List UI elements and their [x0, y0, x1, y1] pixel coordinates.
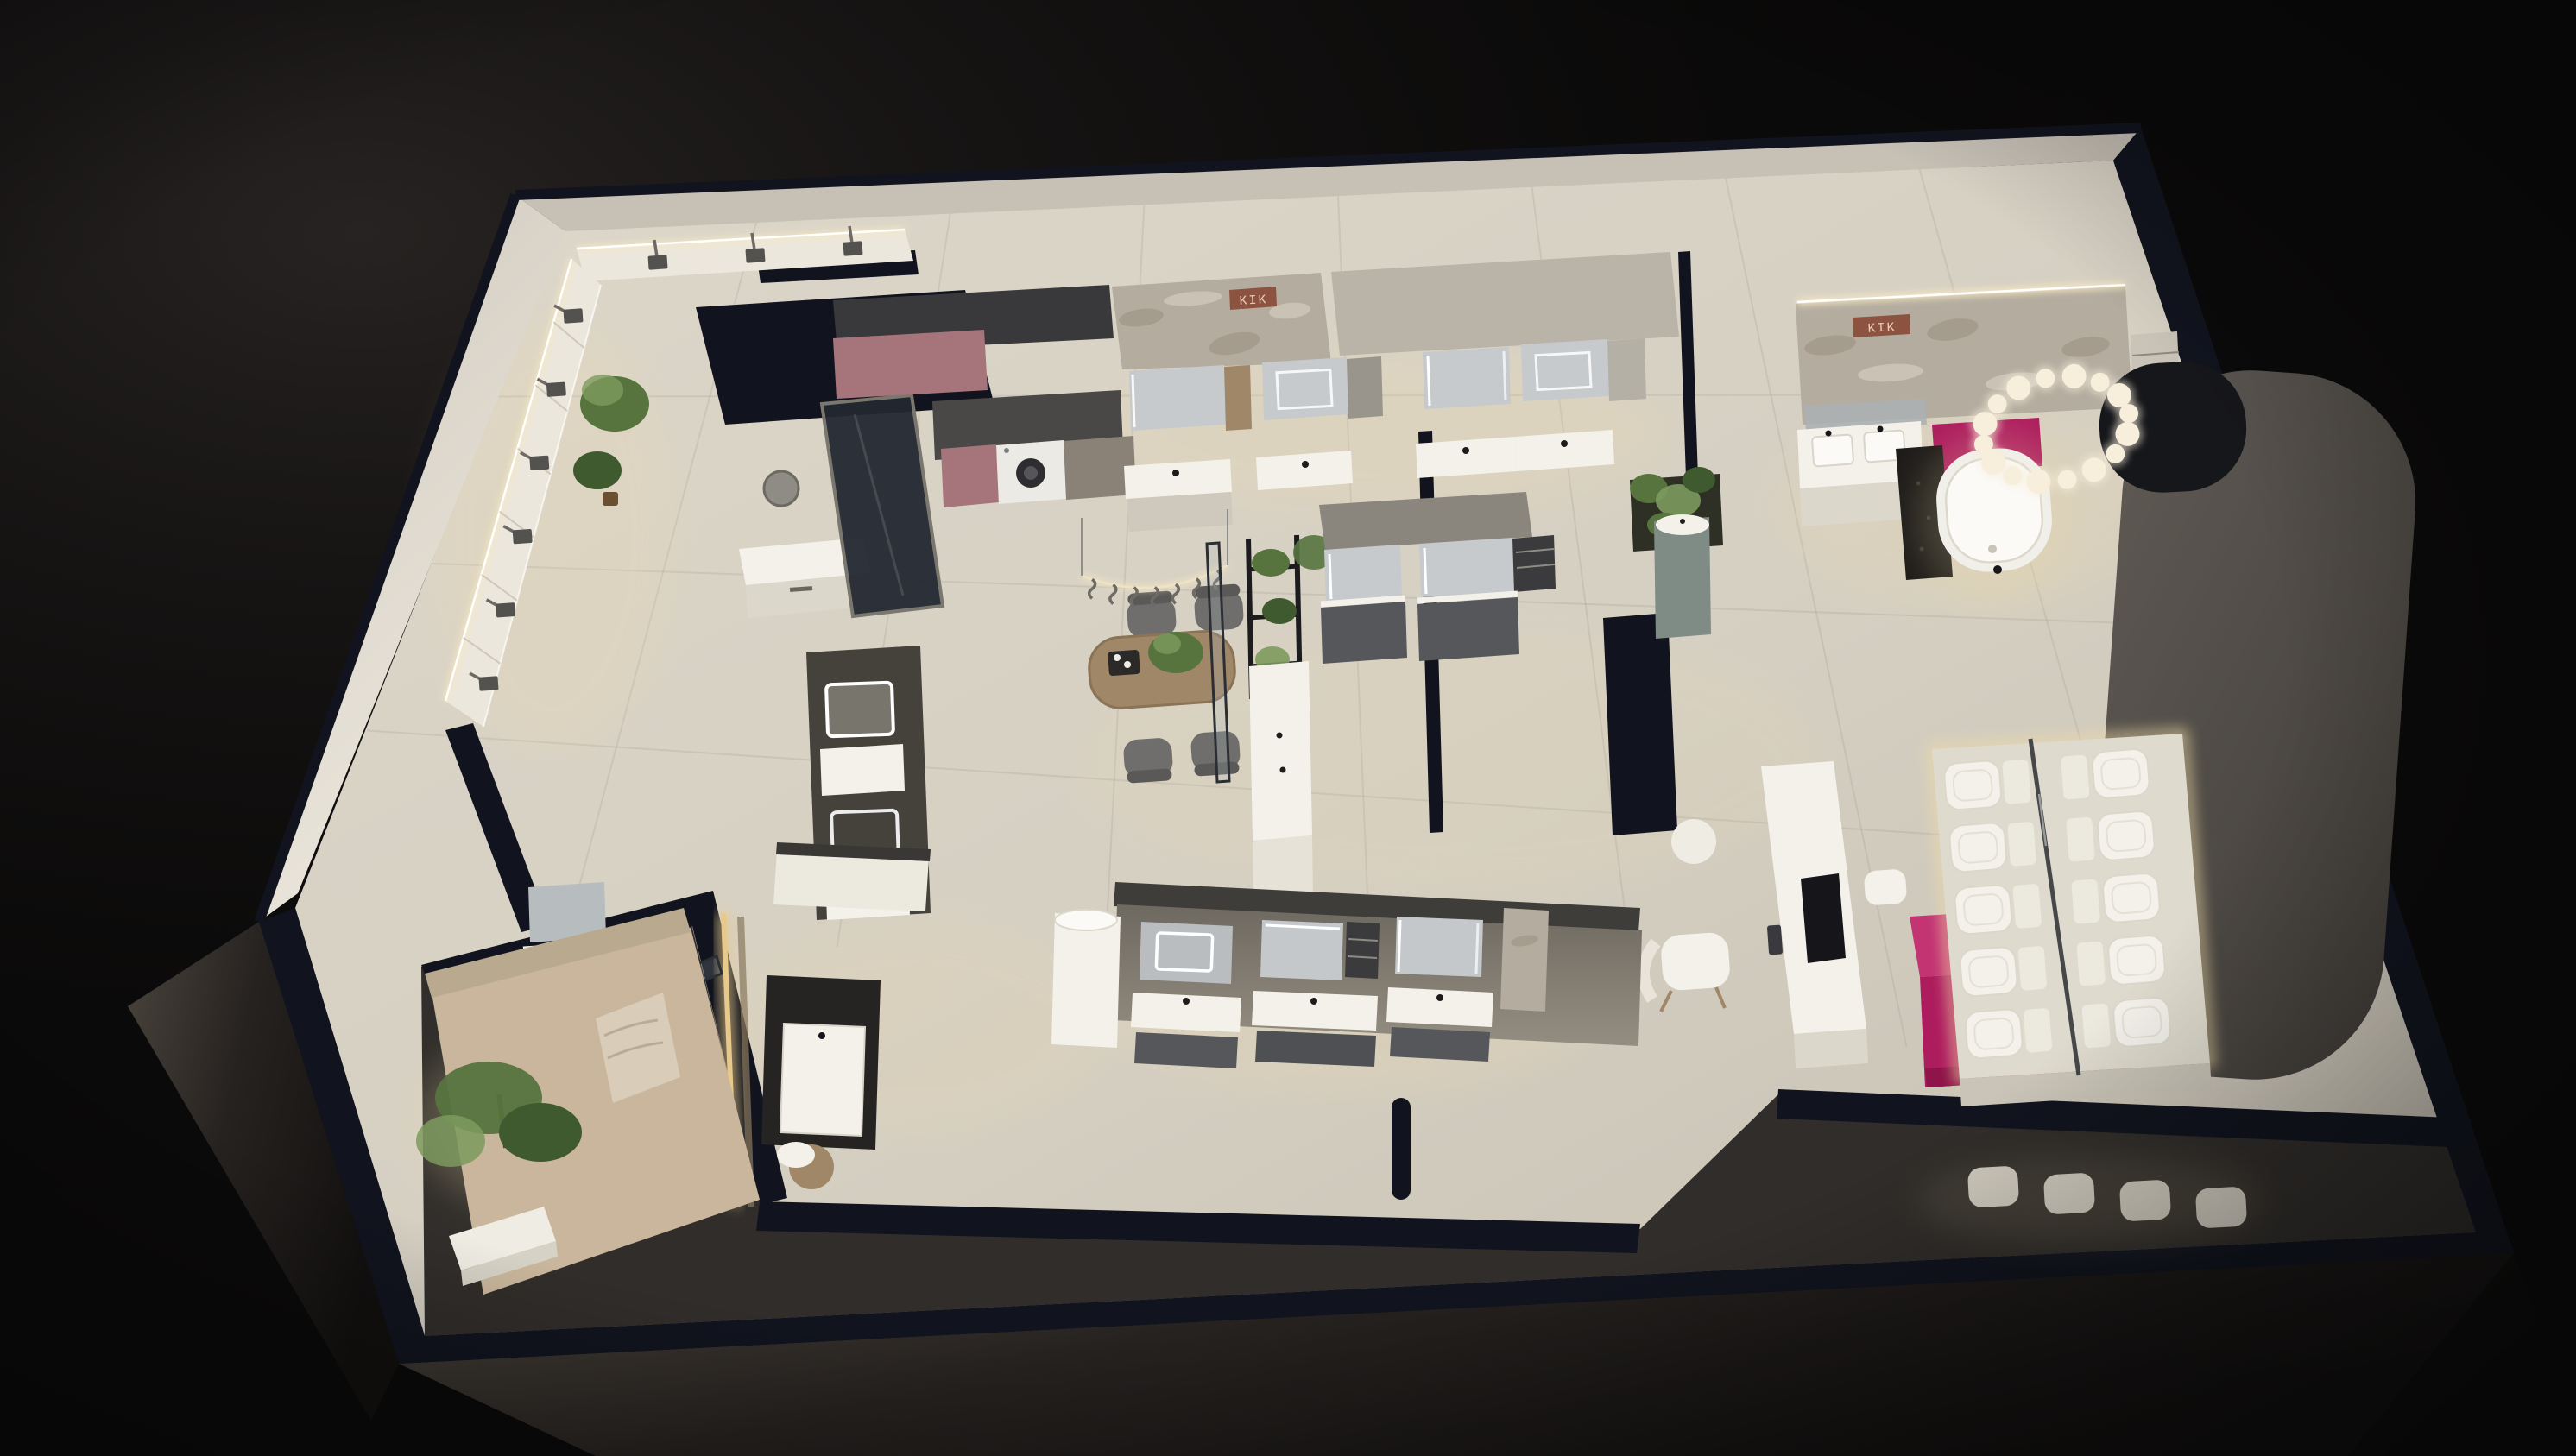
vignette-overlay [0, 0, 2576, 1456]
render-stage: KIK [0, 0, 2576, 1456]
showroom-render: KIK [0, 0, 2576, 1456]
